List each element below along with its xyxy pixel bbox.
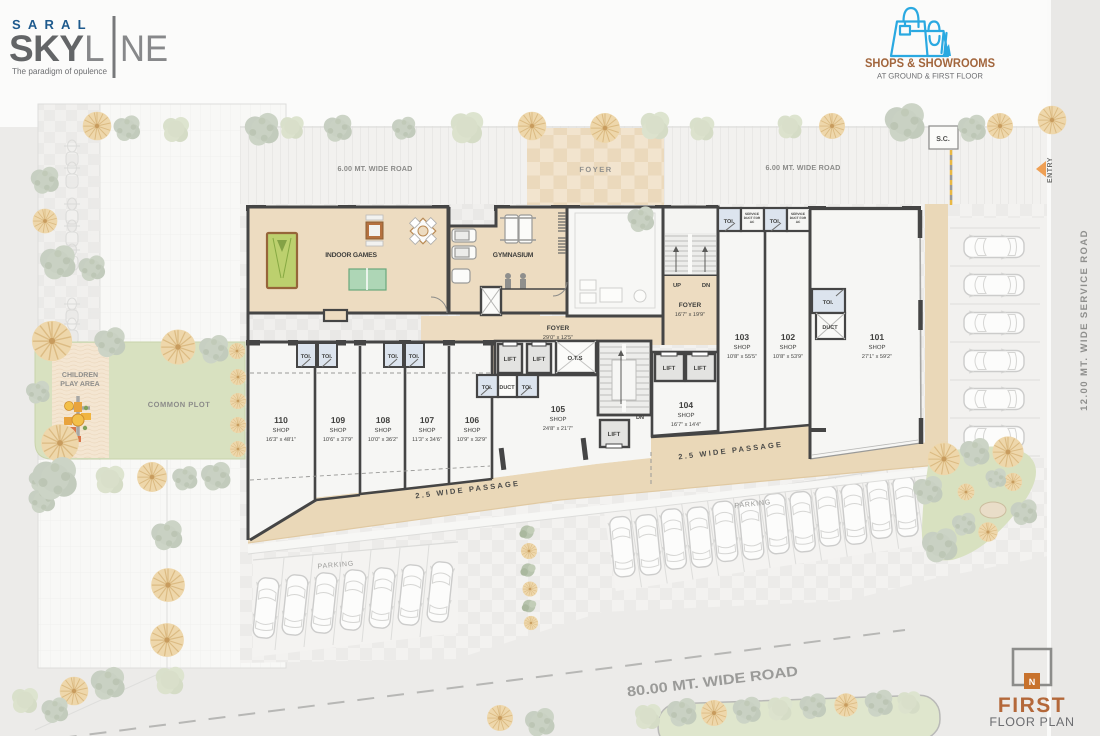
svg-text:TOI.: TOI.: [388, 354, 399, 360]
svg-text:TOI.: TOI.: [322, 354, 333, 360]
svg-text:FOYER: FOYER: [579, 165, 612, 174]
svg-text:LIFT: LIFT: [533, 356, 546, 363]
svg-text:10'8" x 55'5": 10'8" x 55'5": [727, 354, 757, 360]
svg-text:DUCT: DUCT: [822, 325, 838, 331]
svg-text:UP: UP: [673, 283, 681, 289]
svg-text:105: 105: [551, 404, 565, 414]
svg-text:TOI.: TOI.: [823, 300, 834, 306]
svg-text:DN: DN: [636, 415, 644, 421]
svg-text:6.00 MT. WIDE ROAD: 6.00 MT. WIDE ROAD: [765, 163, 840, 172]
svg-text:GYMNASIUM: GYMNASIUM: [493, 252, 534, 259]
svg-text:SHOPS & SHOWROOMS: SHOPS & SHOWROOMS: [865, 56, 995, 70]
svg-text:10'0" x 36'2": 10'0" x 36'2": [368, 437, 398, 443]
svg-text:N: N: [1029, 677, 1036, 687]
svg-text:103: 103: [735, 332, 749, 342]
svg-text:16'7" x 19'9": 16'7" x 19'9": [675, 312, 705, 318]
svg-text:SHOP: SHOP: [463, 427, 480, 434]
svg-text:FLOOR PLAN: FLOOR PLAN: [989, 715, 1074, 729]
svg-text:O.T.S: O.T.S: [567, 355, 582, 362]
svg-text:FOYER: FOYER: [547, 325, 570, 332]
svg-text:LIFT: LIFT: [663, 365, 676, 372]
svg-text:INDOOR GAMES: INDOOR GAMES: [325, 252, 377, 259]
svg-text:11'3" x 34'6": 11'3" x 34'6": [412, 437, 442, 443]
svg-text:PLAY AREA: PLAY AREA: [60, 381, 99, 388]
svg-text:110: 110: [274, 415, 288, 425]
svg-text:10'9" x 32'9": 10'9" x 32'9": [457, 437, 487, 443]
svg-text:SHOP: SHOP: [374, 427, 391, 434]
svg-text:16'3" x 48'1": 16'3" x 48'1": [266, 437, 296, 443]
svg-text:AC: AC: [750, 220, 755, 224]
svg-text:SHOP: SHOP: [779, 344, 796, 351]
svg-text:SHOP: SHOP: [272, 427, 289, 434]
svg-text:FOYER: FOYER: [679, 302, 702, 309]
svg-text:S.C.: S.C.: [936, 136, 950, 143]
svg-text:SHOP: SHOP: [418, 427, 435, 434]
svg-text:TOI.: TOI.: [301, 354, 312, 360]
svg-text:27'1" x 59'2": 27'1" x 59'2": [862, 354, 892, 360]
svg-text:10'8" x 53'9": 10'8" x 53'9": [773, 354, 803, 360]
svg-text:LIFT: LIFT: [608, 431, 621, 438]
svg-text:TOI.: TOI.: [522, 385, 533, 391]
svg-text:101: 101: [870, 332, 884, 342]
svg-text:SHOP: SHOP: [549, 416, 566, 423]
svg-text:L: L: [84, 28, 106, 69]
svg-text:NE: NE: [120, 28, 168, 69]
svg-text:10'6" x 37'9": 10'6" x 37'9": [323, 437, 353, 443]
svg-text:109: 109: [331, 415, 345, 425]
svg-text:TOI.: TOI.: [724, 219, 735, 225]
svg-text:AT GROUND & FIRST FLOOR: AT GROUND & FIRST FLOOR: [877, 72, 983, 81]
svg-text:107: 107: [420, 415, 434, 425]
svg-text:SHOP: SHOP: [677, 412, 694, 419]
svg-text:DUCT: DUCT: [499, 385, 515, 391]
svg-text:102: 102: [781, 332, 795, 342]
svg-text:6.00 MT. WIDE ROAD: 6.00 MT. WIDE ROAD: [337, 164, 412, 173]
svg-text:108: 108: [376, 415, 390, 425]
svg-text:SHOP: SHOP: [733, 344, 750, 351]
svg-text:12.00 MT. WIDE SERVICE ROAD: 12.00 MT. WIDE SERVICE ROAD: [1079, 229, 1090, 411]
svg-text:TOI.: TOI.: [770, 219, 781, 225]
svg-text:AC: AC: [796, 220, 801, 224]
svg-text:16'7" x 14'4": 16'7" x 14'4": [671, 422, 701, 428]
svg-text:CHILDREN: CHILDREN: [62, 372, 98, 379]
svg-text:SHOP: SHOP: [868, 344, 885, 351]
svg-text:29'0" x 12'5": 29'0" x 12'5": [543, 335, 573, 341]
svg-text:FIRST: FIRST: [998, 694, 1066, 717]
svg-text:104: 104: [679, 400, 693, 410]
svg-text:SKY: SKY: [9, 28, 84, 69]
svg-text:TOI.: TOI.: [409, 354, 420, 360]
svg-text:The paradigm of opulence: The paradigm of opulence: [12, 66, 107, 76]
svg-text:LIFT: LIFT: [504, 356, 517, 363]
svg-text:ENTRY: ENTRY: [1047, 157, 1054, 183]
svg-text:COMMON PLOT: COMMON PLOT: [148, 400, 211, 409]
svg-text:SHOP: SHOP: [329, 427, 346, 434]
svg-text:LIFT: LIFT: [694, 365, 707, 372]
svg-text:TOI.: TOI.: [482, 385, 493, 391]
svg-text:106: 106: [465, 415, 479, 425]
svg-text:DN: DN: [702, 283, 710, 289]
svg-text:24'8" x 21'7": 24'8" x 21'7": [543, 426, 573, 432]
